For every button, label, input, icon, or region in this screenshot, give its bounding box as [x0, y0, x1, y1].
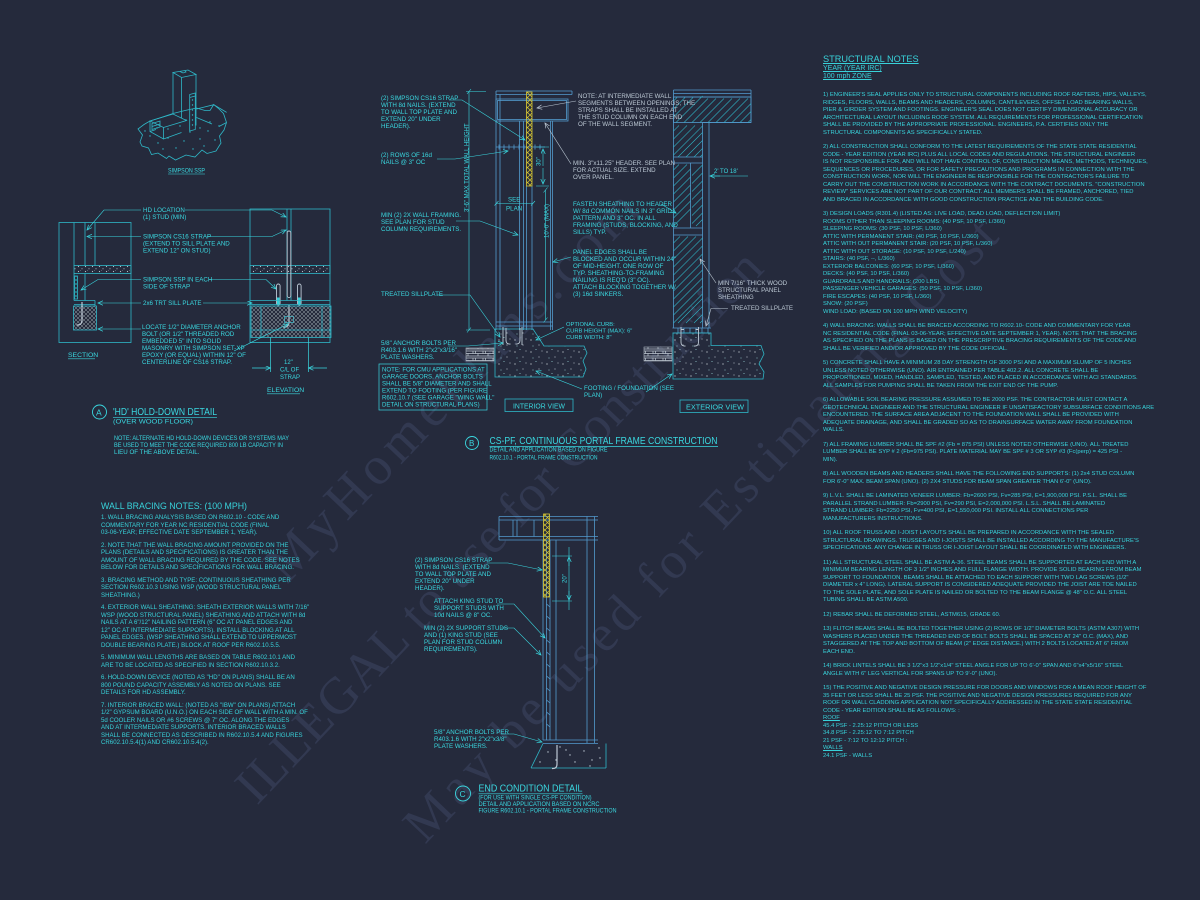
svg-text:HEADER).: HEADER). [381, 123, 411, 130]
svg-text:DETAIL ON STRUCTURAL PLANS): DETAIL ON STRUCTURAL PLANS) [382, 402, 480, 409]
svg-text:EMBEDDED 5" INTO SOLID: EMBEDDED 5" INTO SOLID [142, 338, 222, 345]
svg-text:SECTION: SECTION [68, 352, 98, 359]
svg-text:STRAP: STRAP [280, 375, 300, 381]
svg-text:ELEVATION: ELEVATION [267, 387, 304, 394]
svg-text:BLOCKED AND OCCUR WITHIN 24": BLOCKED AND OCCUR WITHIN 24" [573, 256, 676, 263]
svg-text:(2) SIMPSON CS16 STRAP: (2) SIMPSON CS16 STRAP [381, 95, 458, 102]
svg-text:LIEU OF THE ABOVE DETAIL.: LIEU OF THE ABOVE DETAIL. [114, 449, 200, 456]
svg-text:HEADER).: HEADER). [415, 585, 445, 592]
svg-text:NAILS @ 3" OC: NAILS @ 3" OC [381, 159, 426, 166]
svg-text:SHEATHING: SHEATHING [718, 294, 754, 301]
svg-text:PANEL EDGES SHALL BE: PANEL EDGES SHALL BE [573, 249, 647, 256]
svg-text:AND (1) KING STUD (SEE: AND (1) KING STUD (SEE [424, 632, 498, 639]
svg-text:INTERIOR VIEW: INTERIOR VIEW [513, 402, 565, 411]
svg-text:(2) ROWS OF 16d: (2) ROWS OF 16d [381, 152, 432, 159]
svg-text:(EXTEND TO SILL PLATE AND: (EXTEND TO SILL PLATE AND [143, 241, 230, 248]
svg-text:PLATE WASHERS.: PLATE WASHERS. [434, 743, 488, 750]
svg-text:TREATED SILLPLATE: TREATED SILLPLATE [731, 305, 793, 312]
svg-text:R602.10.7 (SEE GARAGE "WING WA: R602.10.7 (SEE GARAGE "WING WALL" [382, 395, 494, 402]
svg-text:12": 12" [284, 360, 293, 366]
svg-text:(2) SIMPSON CS16 STRAP: (2) SIMPSON CS16 STRAP [415, 557, 492, 564]
svg-text:OF THE WALL SEGMENT.: OF THE WALL SEGMENT. [578, 121, 652, 128]
svg-text:EXTEND 20" UNDER: EXTEND 20" UNDER [381, 116, 441, 123]
svg-text:MASONRY WITH SIMPSON SET-XP: MASONRY WITH SIMPSON SET-XP [142, 345, 245, 352]
svg-text:FASTEN SHEATHING TO HEADER: FASTEN SHEATHING TO HEADER [573, 201, 673, 208]
svg-text:2x6 TRT SILL PLATE: 2x6 TRT SILL PLATE [143, 300, 201, 307]
svg-text:EXTEND 20" UNDER: EXTEND 20" UNDER [415, 578, 475, 585]
svg-text:GARAGE DOORS, ANCHOR BOLTS: GARAGE DOORS, ANCHOR BOLTS [382, 374, 483, 381]
svg-text:TO WALL TOP PLATE AND: TO WALL TOP PLATE AND [381, 109, 458, 116]
svg-text:PLAN FOR STUD COLUMN: PLAN FOR STUD COLUMN [424, 639, 502, 646]
svg-text:SEE PLAN FOR STUD: SEE PLAN FOR STUD [381, 219, 445, 226]
svg-text:SEE: SEE [508, 197, 520, 204]
svg-text:10d NAILS @ 8" OC.: 10d NAILS @ 8" OC. [434, 612, 492, 619]
svg-text:REQUIREMENTS).: REQUIREMENTS). [424, 646, 478, 653]
svg-text:3'-6" MAX TOTAL WALL HEIGHT: 3'-6" MAX TOTAL WALL HEIGHT [465, 123, 471, 212]
svg-text:A: A [96, 408, 102, 418]
svg-text:SIDE OF STRAP: SIDE OF STRAP [143, 284, 190, 291]
svg-text:EXTERIOR VIEW: EXTERIOR VIEW [686, 403, 744, 412]
svg-text:SUPPORT STUDS WITH: SUPPORT STUDS WITH [434, 605, 504, 612]
svg-text:W/ 8d COMMON NAILS IN 3" GRID: W/ 8d COMMON NAILS IN 3" GRID [573, 208, 672, 215]
svg-text:TYP. SHEATHING-TO-FRAMING: TYP. SHEATHING-TO-FRAMING [573, 270, 665, 277]
svg-text:MIN 7/16" THICK WOOD: MIN 7/16" THICK WOOD [718, 280, 788, 287]
svg-text:HD LOCATION: HD LOCATION [143, 207, 185, 214]
svg-text:CURB WIDTH: 8": CURB WIDTH: 8" [566, 335, 612, 341]
svg-text:OVER PANEL.: OVER PANEL. [573, 174, 614, 181]
svg-text:PLAN): PLAN) [584, 392, 602, 399]
svg-text:STRUCTURAL PANEL: STRUCTURAL PANEL [718, 287, 781, 294]
svg-text:BOLT (OR 1/2" THREADED ROD: BOLT (OR 1/2" THREADED ROD [142, 331, 235, 338]
svg-text:END CONDITION DETAIL: END CONDITION DETAIL [479, 784, 583, 795]
svg-text:EXTEND TO FOOTING (PER FIGURE: EXTEND TO FOOTING (PER FIGURE [382, 388, 487, 395]
svg-text:MIN. 3"x11.25" HEADER. SEE PLA: MIN. 3"x11.25" HEADER. SEE PLAN [573, 160, 675, 167]
svg-text:B: B [469, 439, 474, 448]
svg-text:TREATED SILLPLATE: TREATED SILLPLATE [381, 291, 443, 298]
svg-text:CENTERLINE OF CS16 STRAP.: CENTERLINE OF CS16 STRAP. [142, 359, 232, 366]
svg-text:FOOTING / FOUNDATION (SEE: FOOTING / FOUNDATION (SEE [584, 385, 674, 392]
svg-text:C: C [460, 789, 466, 799]
svg-text:SHALL BE 5/8" DIAMETER AND SHA: SHALL BE 5/8" DIAMETER AND SHALL [382, 381, 492, 388]
svg-text:COLUMN REQUIREMENTS.: COLUMN REQUIREMENTS. [381, 226, 461, 233]
svg-text:R403.1.6 WITH 2"x2"x3/16": R403.1.6 WITH 2"x2"x3/16" [381, 347, 457, 354]
svg-text:10'-0" (MAX): 10'-0" (MAX) [545, 204, 551, 238]
svg-text:(1) STUD (MIN): (1) STUD (MIN) [143, 214, 186, 221]
svg-text:5/8" ANCHOR BOLTS PER: 5/8" ANCHOR BOLTS PER [381, 340, 457, 347]
svg-text:20": 20" [563, 574, 569, 583]
svg-text:'HD' HOLD-DOWN DETAIL: 'HD' HOLD-DOWN DETAIL [113, 407, 217, 418]
svg-text:(OVER WOOD FLOOR): (OVER WOOD FLOOR) [113, 419, 193, 426]
svg-text:CURB HEIGHT (MAX): 6": CURB HEIGHT (MAX): 6" [566, 329, 632, 335]
svg-text:LOCATE 1/2" DIAMETER ANCHOR: LOCATE 1/2" DIAMETER ANCHOR [142, 324, 241, 331]
svg-text:PLATE WASHERS.: PLATE WASHERS. [381, 354, 435, 361]
svg-text:BE USED TO MEET THE CODE REQUI: BE USED TO MEET THE CODE REQUIRED 800 LB… [114, 442, 283, 449]
svg-text:FRAMING (STUDS, BLOCKING, AND: FRAMING (STUDS, BLOCKING, AND [573, 222, 678, 229]
svg-text:FOR ACTUAL SIZE. EXTEND: FOR ACTUAL SIZE. EXTEND [573, 167, 656, 174]
svg-text:WITH 8d NAILS. (EXTEND: WITH 8d NAILS. (EXTEND [381, 102, 456, 109]
svg-text:NOTE: ALTERNATE HD HOLD-DOWN D: NOTE: ALTERNATE HD HOLD-DOWN DEVICES OR … [114, 435, 289, 442]
svg-text:NOTE: FOR CMU APPLICATIONS AT: NOTE: FOR CMU APPLICATIONS AT [382, 367, 485, 374]
svg-text:OF MID-HEIGHT. ONE ROW OF: OF MID-HEIGHT. ONE ROW OF [573, 263, 664, 270]
svg-text:EXTEND 12" ON STUD): EXTEND 12" ON STUD) [143, 248, 211, 255]
svg-text:FIGURE R602.10.1 - PORTAL FRAM: FIGURE R602.10.1 - PORTAL FRAME CONSTRUC… [479, 808, 617, 815]
svg-text:CS-PF, CONTINUOUS PORTAL FRAME: CS-PF, CONTINUOUS PORTAL FRAME CONSTRUCT… [490, 436, 718, 447]
svg-text:STRAPS SHALL BE INSTALLED AT: STRAPS SHALL BE INSTALLED AT [578, 107, 678, 114]
svg-text:THE STUD COLUMN ON EACH END: THE STUD COLUMN ON EACH END [578, 114, 683, 121]
svg-text:R403.1.6 WITH 2"x2"x3/8": R403.1.6 WITH 2"x2"x3/8" [434, 736, 507, 743]
svg-text:MIN (2) 2X WALL FRAMING.: MIN (2) 2X WALL FRAMING. [381, 212, 461, 219]
svg-text:C/L OF: C/L OF [280, 368, 299, 374]
svg-text:NOTE: AT INTERMEDIATE WALL: NOTE: AT INTERMEDIATE WALL [578, 93, 672, 100]
svg-text:WITH 8d NAILS. (EXTEND: WITH 8d NAILS. (EXTEND [415, 564, 490, 571]
svg-text:EPOXY (OR EQUAL) WITHIN 12" OF: EPOXY (OR EQUAL) WITHIN 12" OF [142, 352, 246, 359]
svg-text:30": 30" [537, 157, 543, 166]
svg-text:SIMPSON CS16 STRAP: SIMPSON CS16 STRAP [143, 234, 211, 241]
svg-text:PATTERN AND 3" OC. IN ALL: PATTERN AND 3" OC. IN ALL [573, 215, 656, 222]
svg-text:TO WALL TOP PLATE AND: TO WALL TOP PLATE AND [415, 571, 492, 578]
svg-text:ATTACH BLOCKING TOGETHER W/: ATTACH BLOCKING TOGETHER W/ [573, 284, 676, 291]
svg-text:OPTIONAL CURB:: OPTIONAL CURB: [566, 322, 615, 328]
svg-text:PLAN: PLAN [506, 206, 522, 213]
svg-text:2' TO 18': 2' TO 18' [714, 169, 738, 175]
svg-text:DETAIL AND APPLICATION BASED O: DETAIL AND APPLICATION BASED ON FIGURE [490, 447, 608, 454]
svg-text:R602.10.1 - PORTAL FRAME CONST: R602.10.1 - PORTAL FRAME CONSTRUCTION [490, 455, 598, 462]
svg-text:5/8" ANCHOR BOLTS PER: 5/8" ANCHOR BOLTS PER [434, 729, 510, 736]
svg-text:(3) 16d SINKERS.: (3) 16d SINKERS. [573, 291, 623, 298]
svg-text:SIMPSON SSP IN EACH: SIMPSON SSP IN EACH [143, 277, 212, 284]
svg-text:NAILING IS REQ'D (3" OC).: NAILING IS REQ'D (3" OC). [573, 277, 651, 284]
svg-text:SEGMENTS BETWEEN OPENINGS, THE: SEGMENTS BETWEEN OPENINGS, THE [578, 100, 695, 107]
svg-text:SILLS) TYP.: SILLS) TYP. [573, 229, 607, 236]
svg-text:SIMPSON SSP: SIMPSON SSP [168, 168, 205, 175]
svg-text:ATTACH KING STUD TO: ATTACH KING STUD TO [434, 598, 504, 605]
svg-text:MIN (2) 2X SUPPORT STUDS: MIN (2) 2X SUPPORT STUDS [424, 625, 508, 632]
